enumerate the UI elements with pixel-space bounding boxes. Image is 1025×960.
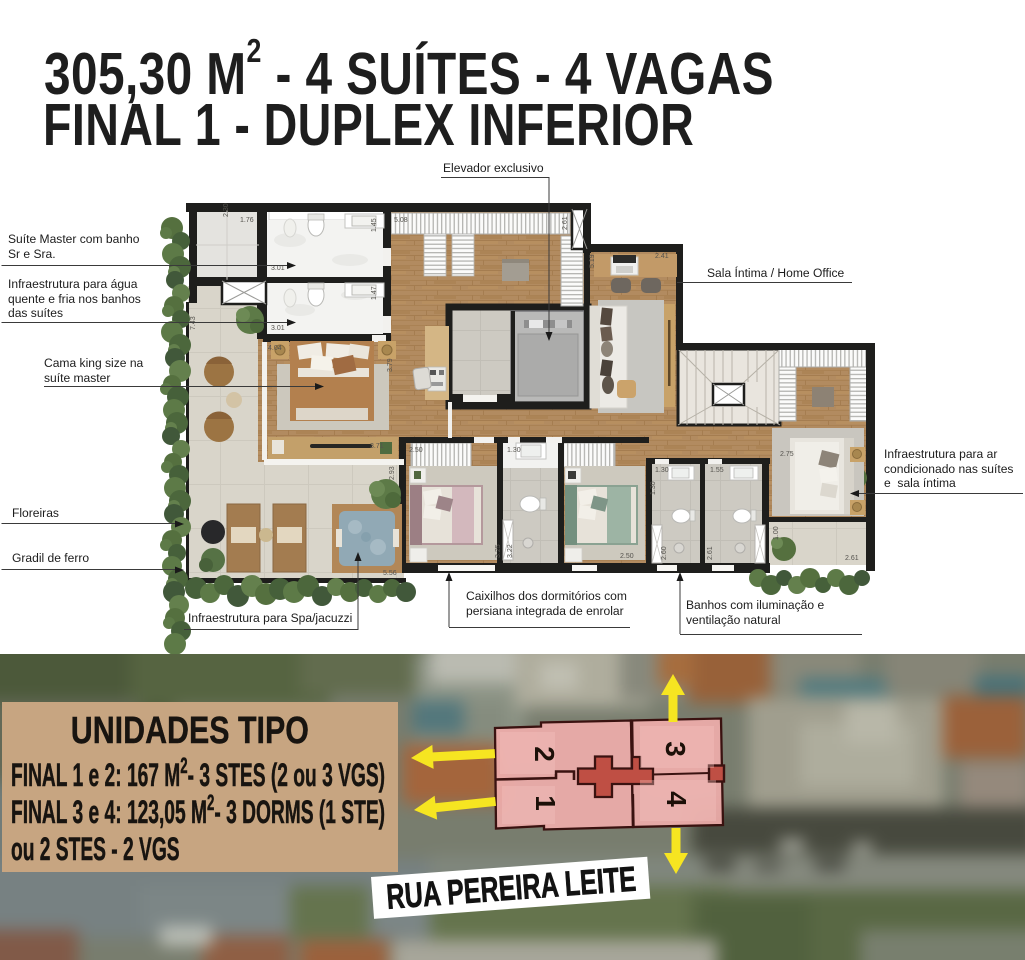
- svg-text:3: 3: [660, 741, 691, 757]
- svg-text:4: 4: [661, 791, 692, 807]
